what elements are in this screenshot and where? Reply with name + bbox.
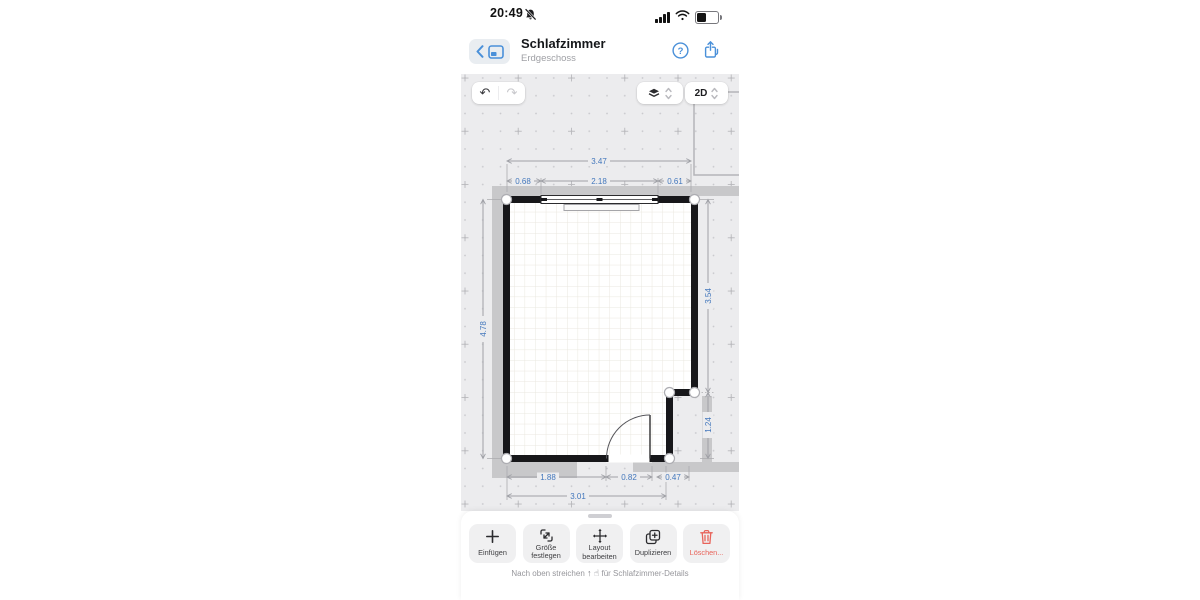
battery-icon	[695, 11, 719, 24]
phone-screen: 20:49	[461, 0, 739, 600]
undo-button[interactable]: ↶	[472, 82, 498, 104]
wifi-icon	[675, 8, 690, 26]
corner-handle[interactable]	[690, 195, 700, 205]
dimension-label-bottom-total[interactable]: 3.01	[570, 492, 586, 501]
set-size-button[interactable]: Größe festlegen	[523, 524, 570, 563]
dimension-label-right-upper[interactable]: 3.54	[704, 288, 713, 304]
corner-handle[interactable]	[665, 454, 675, 464]
status-bar: 20:49	[461, 0, 739, 30]
dimension-label-left-wall[interactable]: 4.78	[479, 321, 488, 337]
resize-icon	[539, 528, 554, 544]
dimension-label-top-window[interactable]: 2.18	[591, 177, 607, 186]
window-sill	[564, 205, 639, 211]
swipe-hand-icon: ☝	[594, 568, 599, 578]
chevron-up-down-icon	[711, 87, 718, 100]
insert-button[interactable]: Einfügen	[469, 524, 516, 563]
dimension-label-top-right[interactable]: 0.61	[667, 177, 683, 186]
undo-redo-group: ↶ ↷	[472, 82, 525, 104]
dimension-label-top-left[interactable]: 0.68	[515, 177, 531, 186]
swipe-up-hint: Nach oben streichen ↑ ☝ für Schlafzimmer…	[461, 568, 739, 579]
bottom-toolbar: Einfügen Größe festlegen	[469, 524, 730, 563]
delete-button[interactable]: Löschen...	[683, 524, 730, 563]
corner-handle[interactable]	[502, 454, 512, 464]
plan-overview-icon	[488, 45, 504, 59]
cellular-signal-icon	[655, 12, 670, 23]
share-button[interactable]	[703, 40, 720, 59]
view-mode-picker[interactable]: 2D	[685, 82, 728, 104]
sheet-drag-handle[interactable]	[588, 514, 612, 518]
dimension-label-bottom-right[interactable]: 0.47	[665, 473, 681, 482]
move-arrows-icon	[592, 528, 608, 544]
navigation-header: Schlafzimmer Erdgeschoss ?	[461, 30, 739, 74]
dimension-label-right-lower[interactable]: 1.24	[704, 417, 713, 433]
edit-layout-button[interactable]: Layout bearbeiten	[576, 524, 623, 563]
floorplan-canvas[interactable]: 3.47 0.68 2.18 0.61 4.78 3.54 1.24 1.88 …	[461, 74, 739, 511]
arrow-up-icon: ↑	[587, 568, 592, 578]
page-subtitle: Erdgeschoss	[521, 53, 606, 64]
chevron-left-icon	[476, 45, 484, 58]
floor-picker[interactable]	[637, 82, 683, 104]
corner-handle[interactable]	[502, 195, 512, 205]
dimension-label-bottom-door[interactable]: 0.82	[621, 473, 637, 482]
redo-button[interactable]: ↷	[499, 82, 525, 104]
title-block: Schlafzimmer Erdgeschoss	[521, 36, 606, 64]
floorplan-drawing[interactable]: 3.47 0.68 2.18 0.61 4.78 3.54 1.24 1.88 …	[461, 74, 739, 511]
notifications-muted-icon	[524, 8, 537, 26]
help-button[interactable]: ?	[672, 42, 689, 59]
dimension-label-bottom-left[interactable]: 1.88	[540, 473, 556, 482]
share-icon	[703, 40, 720, 59]
question-mark-icon: ?	[678, 46, 684, 57]
back-button[interactable]	[469, 39, 510, 64]
layers-icon	[648, 88, 660, 99]
dimension-label-top-total[interactable]: 3.47	[591, 157, 607, 166]
corner-handle[interactable]	[665, 388, 675, 398]
duplicate-icon	[645, 528, 661, 545]
plus-icon	[485, 528, 500, 545]
view-mode-label: 2D	[695, 88, 708, 99]
trash-icon	[699, 528, 714, 545]
clock: 20:49	[490, 6, 523, 20]
chevron-up-down-icon	[665, 87, 672, 100]
corner-handle[interactable]	[690, 388, 700, 398]
duplicate-button[interactable]: Duplizieren	[630, 524, 677, 563]
bottom-sheet: Einfügen Größe festlegen	[461, 511, 739, 600]
page-title: Schlafzimmer	[521, 36, 606, 51]
